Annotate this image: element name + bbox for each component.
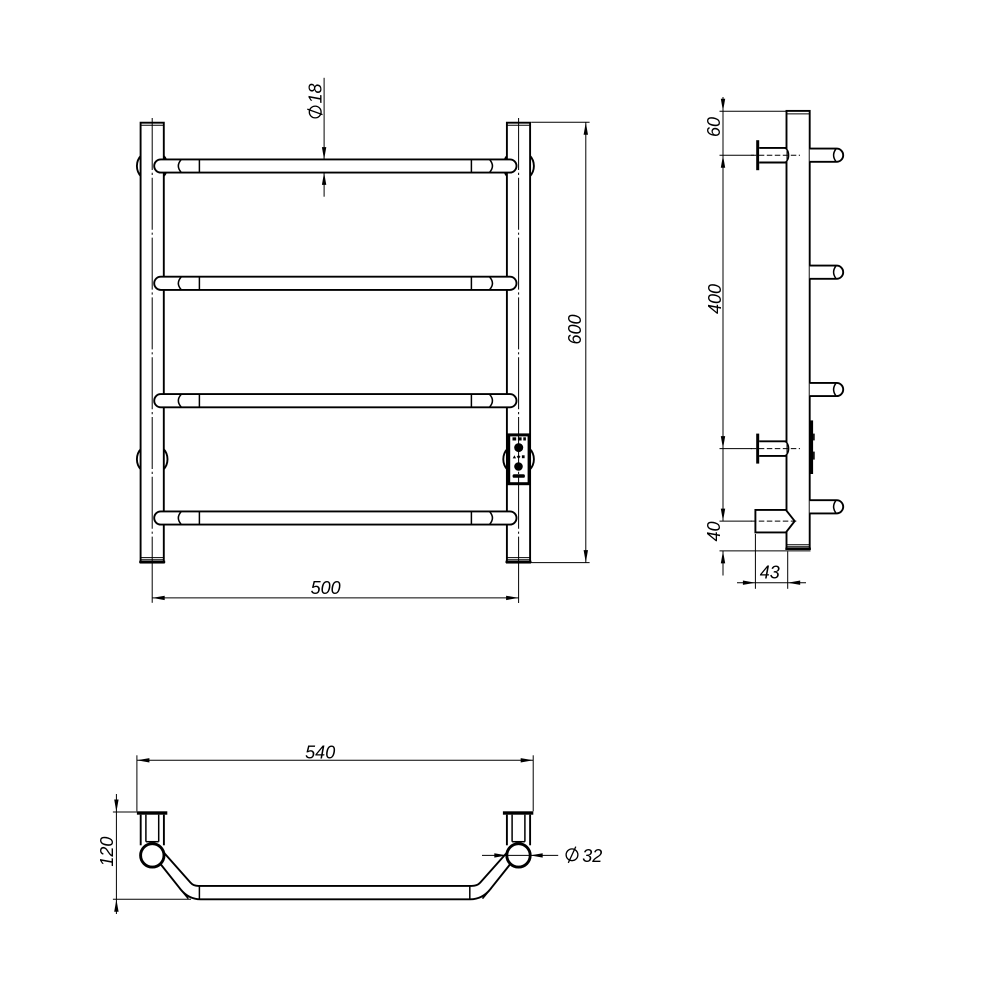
svg-text:400: 400 <box>705 284 725 314</box>
svg-text:18: 18 <box>306 83 326 103</box>
svg-text:60: 60 <box>704 117 724 137</box>
svg-text:40: 40 <box>704 521 724 541</box>
svg-text:120: 120 <box>97 837 117 867</box>
svg-text:43: 43 <box>760 562 780 582</box>
svg-text:500: 500 <box>311 578 341 598</box>
svg-text:600: 600 <box>565 314 585 344</box>
svg-text:32: 32 <box>582 846 602 866</box>
svg-text:540: 540 <box>305 742 335 762</box>
